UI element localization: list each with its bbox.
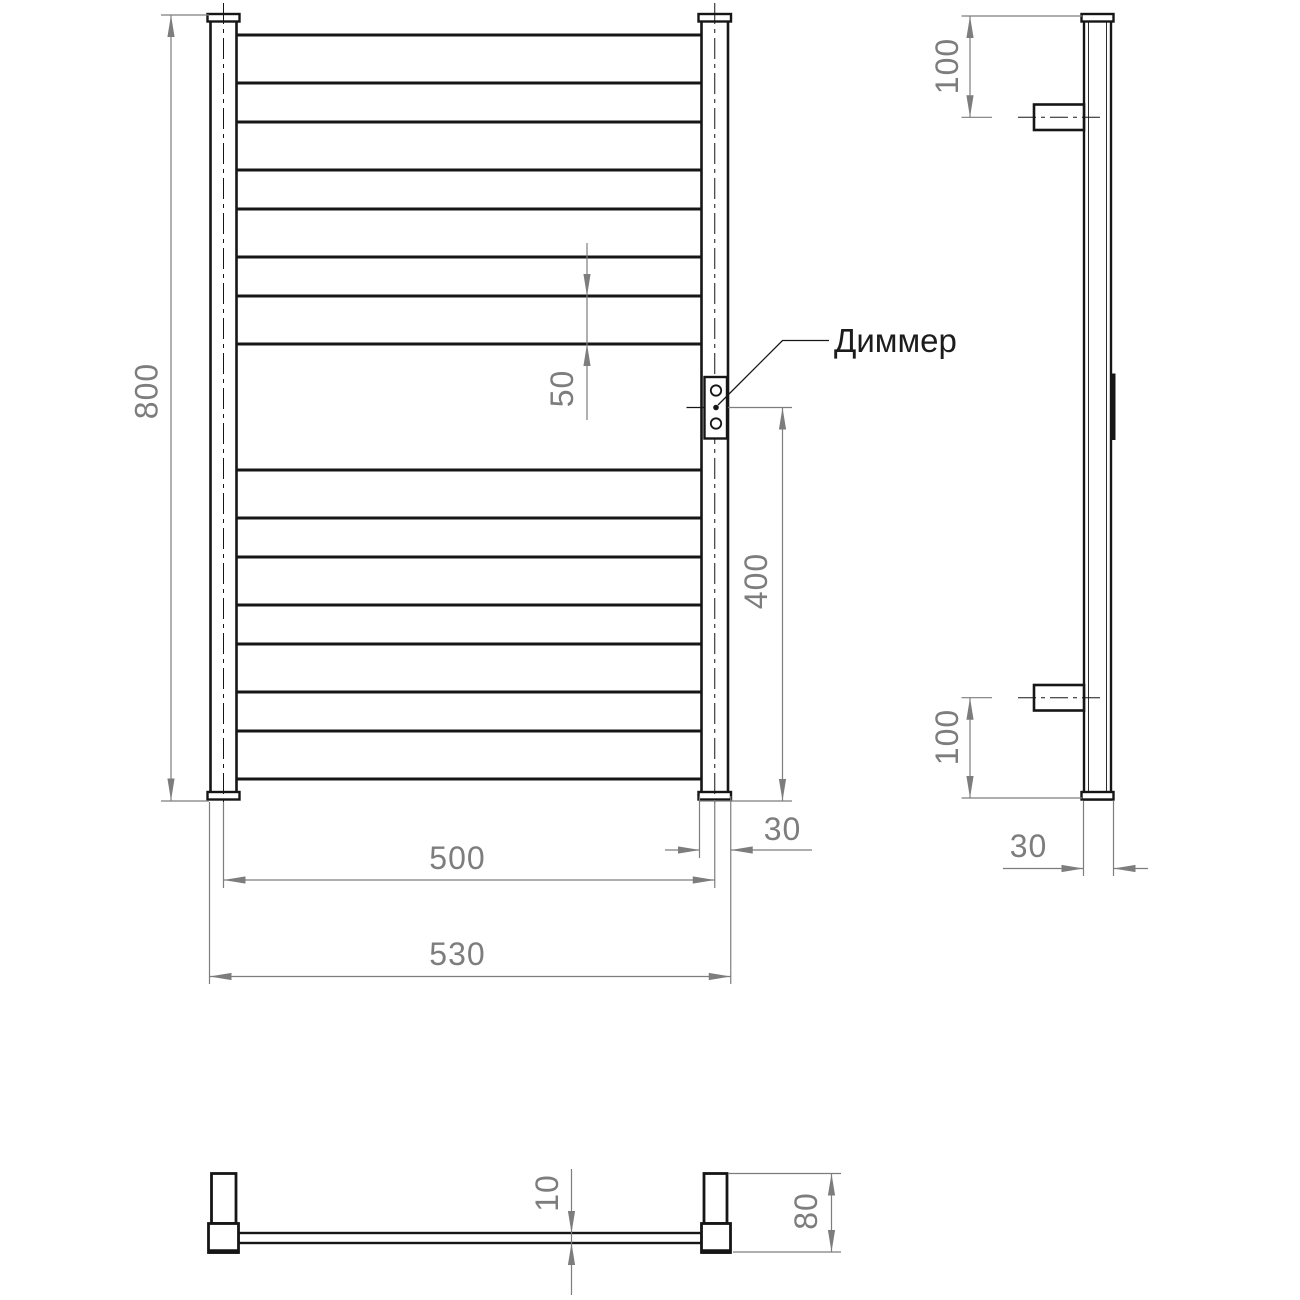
arrowhead-icon <box>167 15 174 37</box>
arrowhead-icon <box>966 776 973 798</box>
dimmer-led-bottom-icon <box>711 418 721 428</box>
dimension-arrowheads <box>167 15 1135 1265</box>
dimmer-center-dot-icon <box>713 405 719 411</box>
arrowhead-icon <box>210 973 232 980</box>
arrowhead-icon <box>583 344 590 366</box>
technical-drawing: Диммер <box>0 0 1300 1300</box>
arrowhead-icon <box>678 846 700 853</box>
side-dimmer-bump <box>1111 374 1116 441</box>
dimmer-callout-leader <box>718 341 829 406</box>
arrowhead-icon <box>167 779 174 801</box>
arrowhead-icon <box>779 779 786 801</box>
arrowhead-icon <box>583 274 590 296</box>
dim-rung-thickness-label: 10 <box>529 1174 565 1212</box>
arrowhead-icon <box>1114 865 1136 872</box>
bottom-right-post <box>704 1174 727 1224</box>
arrowhead-icon <box>568 1243 575 1265</box>
dim-overall-width-label: 530 <box>429 936 485 972</box>
rungs <box>237 35 702 779</box>
dimension-labels: 800 50 400 30 500 530 100 100 30 10 80 <box>129 38 1048 1230</box>
arrowhead-icon <box>568 1211 575 1233</box>
dim-dimmer-to-bottom-label: 400 <box>738 553 774 609</box>
bottom-rail <box>239 1233 702 1243</box>
dimension-lines <box>161 15 1148 1295</box>
bottom-right-cap <box>702 1224 731 1253</box>
post-centerlines <box>224 3 715 808</box>
dim-bracket-depth-label: 80 <box>788 1192 824 1230</box>
dimmer-callout-label: Диммер <box>834 322 957 359</box>
dim-side-depth-label: 30 <box>1010 828 1048 864</box>
drawing-sheet: Диммер <box>0 0 1300 1300</box>
arrowhead-icon <box>224 876 246 883</box>
bottom-view <box>209 1174 731 1253</box>
arrowhead-icon <box>731 846 753 853</box>
dim-side-bottom-offset-label: 100 <box>929 709 965 765</box>
bottom-left-post <box>212 1174 237 1224</box>
arrowhead-icon <box>966 698 973 720</box>
dimmer-control <box>687 377 728 439</box>
arrowhead-icon <box>966 16 973 38</box>
arrowhead-icon <box>828 1230 835 1252</box>
dim-centers-width-label: 500 <box>429 840 485 876</box>
arrowhead-icon <box>709 973 731 980</box>
arrowhead-icon <box>966 95 973 117</box>
arrowhead-icon <box>1062 865 1084 872</box>
dim-post-width-label: 30 <box>764 811 802 847</box>
arrowhead-icon <box>779 408 786 430</box>
dim-side-top-offset-label: 100 <box>929 38 965 94</box>
arrowhead-icon <box>693 876 715 883</box>
side-view <box>1018 14 1116 800</box>
front-view: Диммер <box>208 3 957 808</box>
bottom-left-cap <box>209 1224 239 1253</box>
side-post-bottom-cap <box>1082 792 1114 800</box>
dim-rung-profile-label: 50 <box>544 370 580 408</box>
arrowhead-icon <box>828 1174 835 1196</box>
side-post-top-cap <box>1082 14 1114 22</box>
dim-front-height-label: 800 <box>129 363 165 419</box>
dimmer-led-top-icon <box>711 385 721 395</box>
